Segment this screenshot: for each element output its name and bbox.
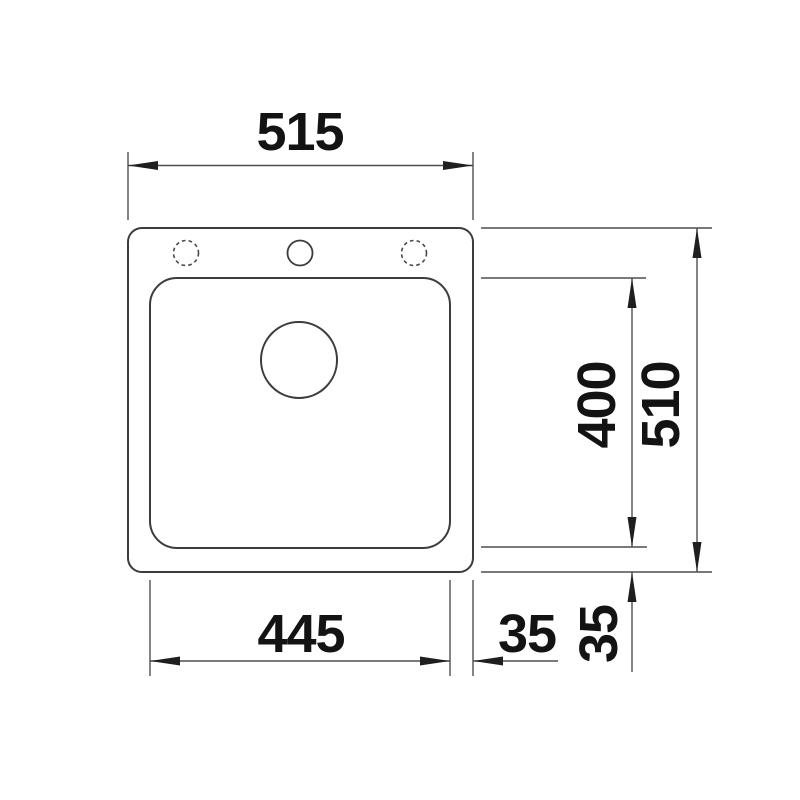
arrowhead-up: [628, 572, 637, 602]
arrowhead-down: [693, 542, 702, 572]
arrowhead-left: [128, 161, 158, 170]
dim-label-overall-width: 515: [256, 102, 343, 162]
sink-technical-drawing: 515 445 35 400: [0, 0, 800, 800]
arrowhead-left: [150, 657, 180, 666]
dim-label-overall-depth: 510: [631, 361, 691, 448]
drain-hole: [261, 322, 337, 398]
tap-hole-right-optional: [402, 241, 427, 266]
dim-label-offset-horizontal: 35: [498, 604, 556, 664]
arrowhead-down: [628, 517, 637, 547]
sink-geometry: [128, 228, 473, 572]
sink-bowl-outline: [150, 278, 450, 548]
dimension-overall-width: 515: [128, 102, 473, 220]
dimension-bowl-depth: 400: [481, 278, 647, 547]
arrowhead-right: [420, 657, 450, 666]
dimension-offset-horizontal: 35: [473, 580, 558, 676]
sink-outer-outline: [128, 228, 473, 572]
arrowhead-up: [693, 228, 702, 258]
dim-label-bowl-width: 445: [257, 604, 344, 664]
tap-hole-left-optional: [174, 241, 199, 266]
drawing-svg: 515 445 35 400: [0, 0, 800, 800]
tap-hole-center: [288, 241, 313, 266]
dim-label-bowl-depth: 400: [567, 361, 627, 448]
dim-label-offset-vertical: 35: [569, 605, 629, 663]
dimension-offset-vertical: 35: [569, 572, 637, 672]
arrowhead-right: [443, 161, 473, 170]
arrowhead-up: [628, 278, 637, 308]
dimension-bowl-width: 445: [150, 580, 450, 676]
